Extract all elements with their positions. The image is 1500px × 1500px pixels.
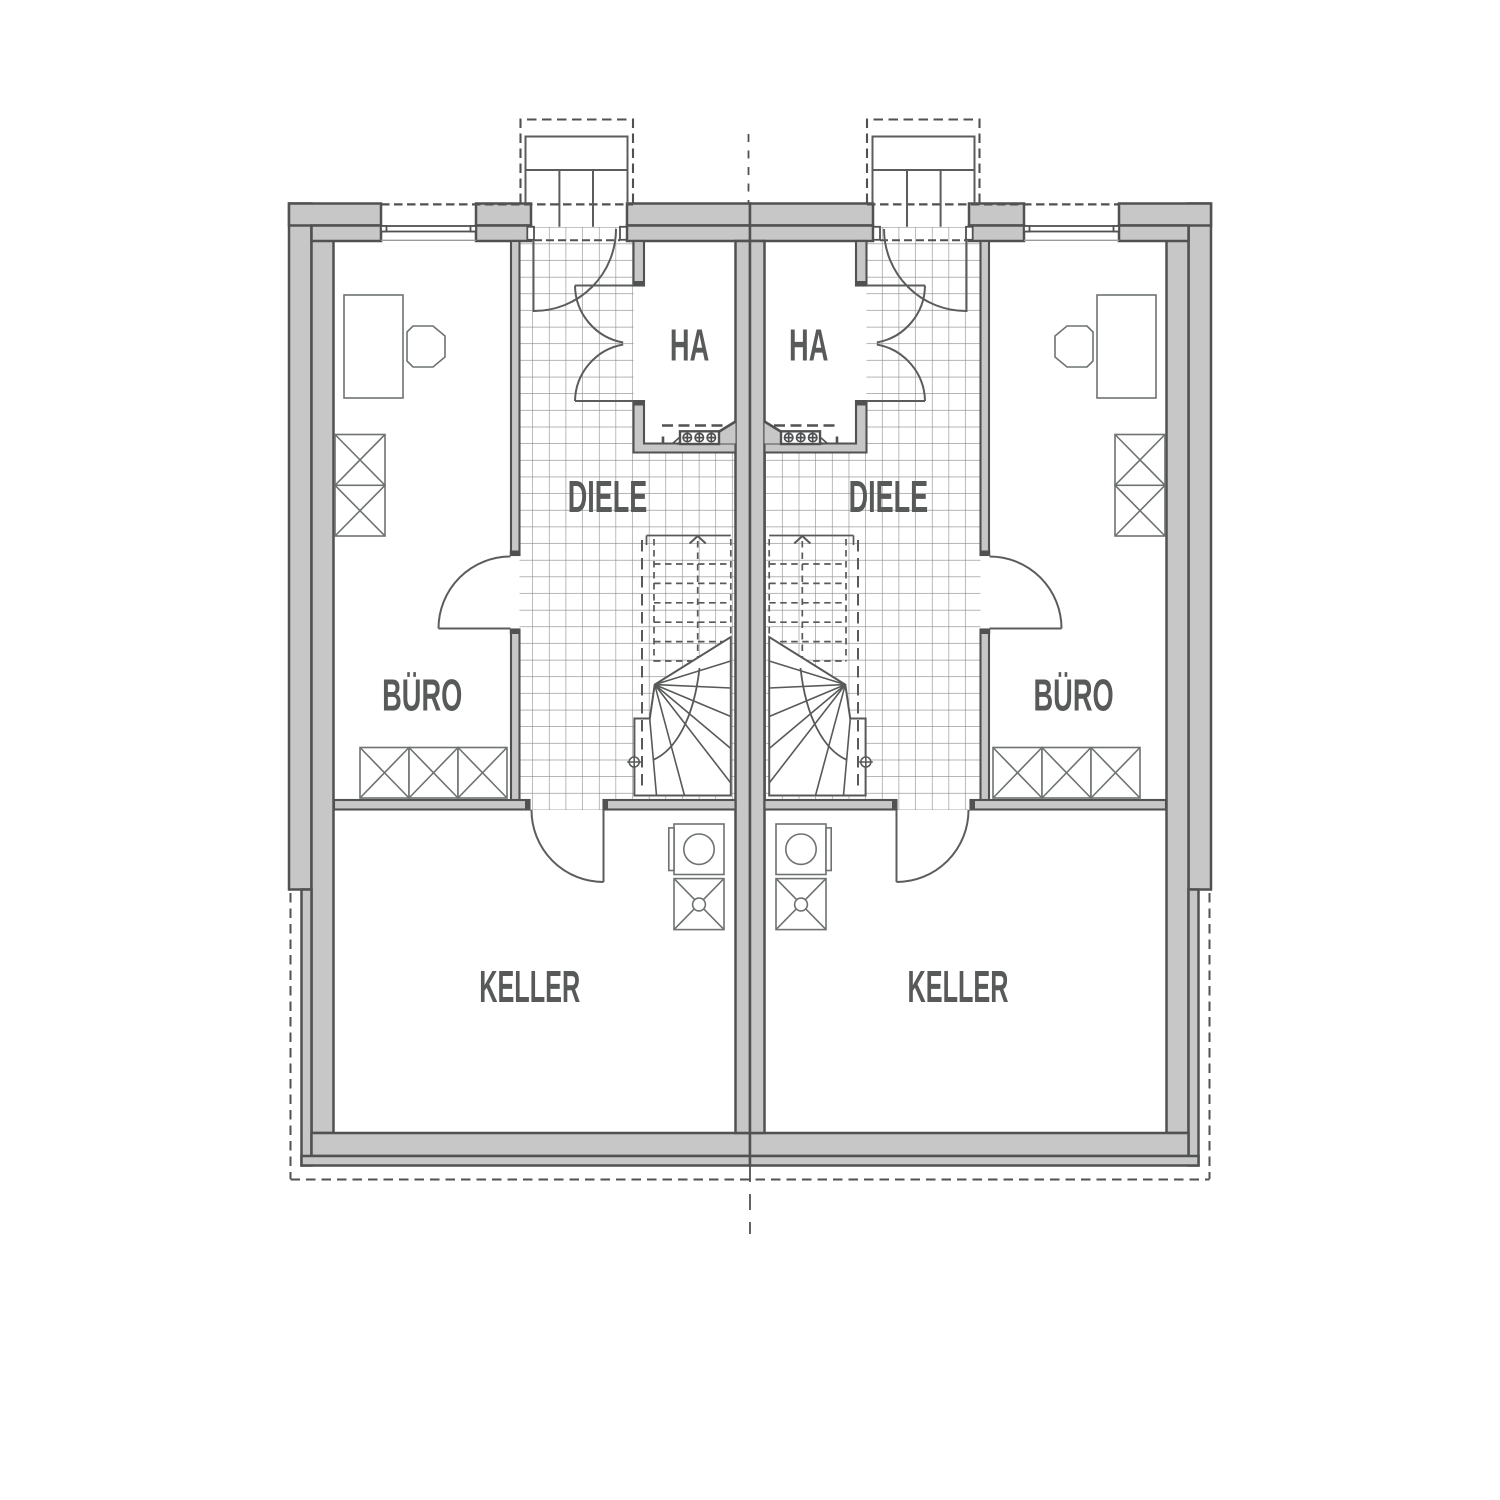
svg-text:DIELE: DIELE: [568, 471, 648, 522]
svg-text:KELLER: KELLER: [908, 961, 1009, 1012]
svg-text:BÜRO: BÜRO: [382, 669, 462, 720]
svg-text:HA: HA: [789, 319, 828, 370]
svg-text:KELLER: KELLER: [479, 961, 580, 1012]
svg-text:DIELE: DIELE: [849, 471, 929, 522]
svg-text:HA: HA: [670, 319, 709, 370]
svg-text:BÜRO: BÜRO: [1034, 669, 1114, 720]
